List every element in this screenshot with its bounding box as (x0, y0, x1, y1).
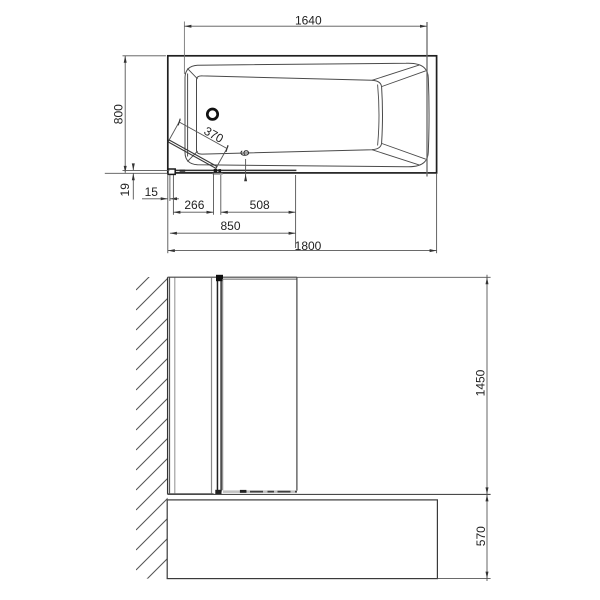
svg-text:266: 266 (184, 198, 204, 212)
svg-text:15: 15 (145, 185, 159, 199)
svg-text:1640: 1640 (295, 13, 322, 27)
svg-text:850: 850 (220, 219, 240, 233)
svg-text:570: 570 (474, 526, 488, 546)
svg-text:1800: 1800 (295, 239, 322, 253)
svg-text:508: 508 (250, 198, 270, 212)
svg-text:1450: 1450 (474, 369, 488, 396)
svg-text:19: 19 (118, 183, 132, 197)
svg-text:800: 800 (112, 104, 126, 124)
svg-text:6: 6 (238, 149, 252, 156)
